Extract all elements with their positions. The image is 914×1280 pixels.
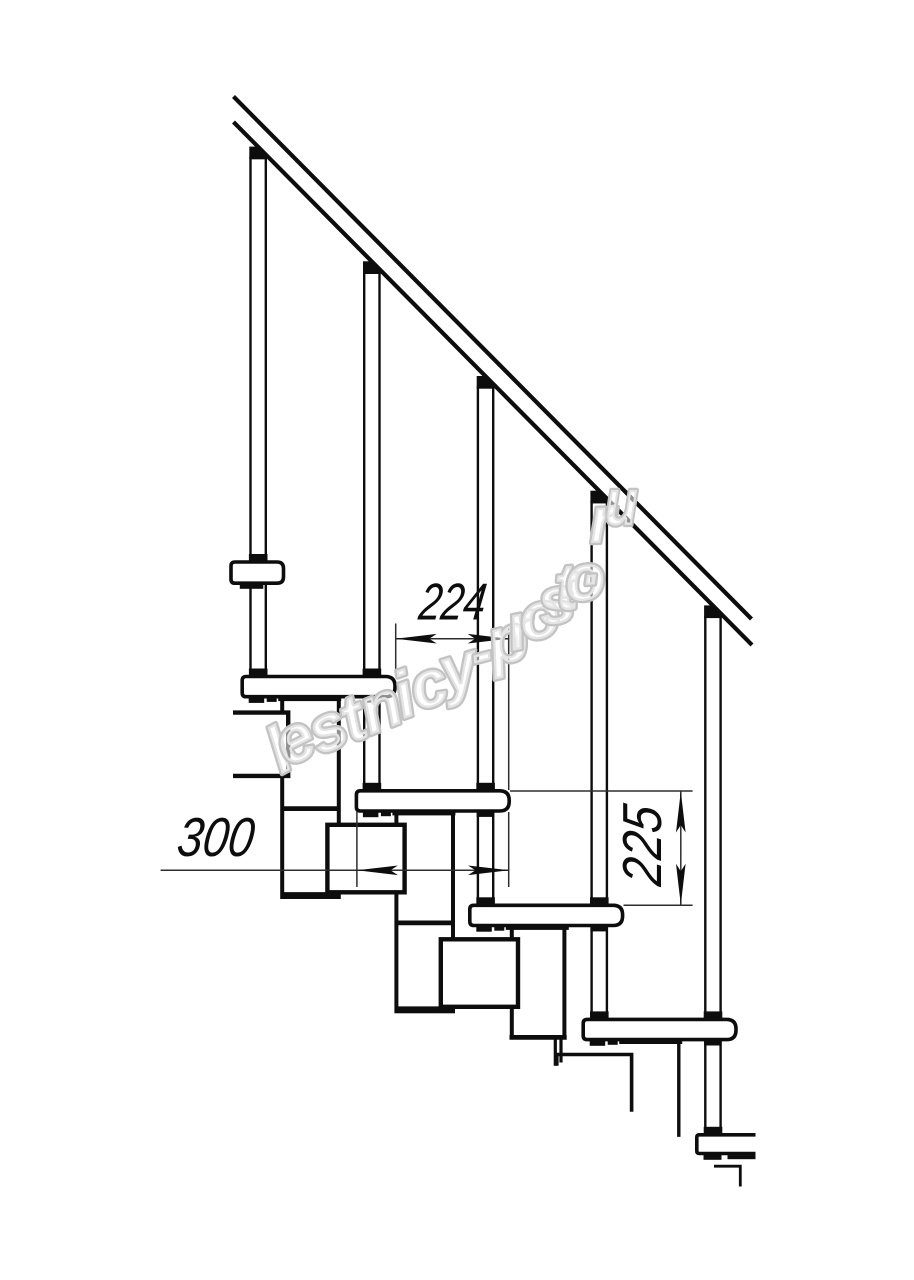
svg-text:300: 300 xyxy=(174,806,259,868)
svg-text:225: 225 xyxy=(611,801,673,890)
svg-text:u: u xyxy=(605,465,638,539)
